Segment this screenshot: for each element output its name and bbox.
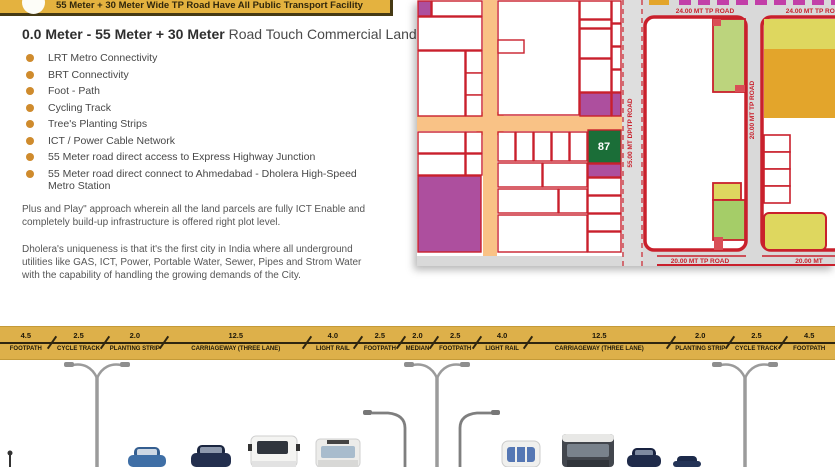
car-icon <box>627 448 661 467</box>
banner-title: 55 Meter + 30 Meter Wide TP Road Have Al… <box>56 0 363 11</box>
segment-label: LIGHT RAIL <box>316 346 350 353</box>
map-55mt-road-strip: 55.00 MT DP/TP ROAD <box>622 0 643 266</box>
list-item: 55 Meter road direct access to Express H… <box>26 151 371 164</box>
segment-width-value: 12.5 <box>592 327 607 340</box>
page-title-regular: Road Touch Commercial Land <box>225 26 417 42</box>
page-title-bold: 0.0 Meter - 55 Meter + 30 Meter <box>22 26 225 42</box>
road-dimension-bar: 4.5FOOTPATH2.5CYCLE TRACK2.0PLANTING STR… <box>0 326 835 360</box>
segment-label: MEDIAN <box>406 346 430 353</box>
segment-label: PLANTING STRIP <box>675 346 725 353</box>
road-label-24mt-left: 24.00 MT TP ROAD <box>676 8 735 15</box>
segment-width-value: 4.0 <box>328 327 338 340</box>
segment-width-value: 2.0 <box>412 327 422 340</box>
car-icon <box>673 456 701 467</box>
car-icon <box>128 447 166 467</box>
street-lamp-icon <box>64 362 130 467</box>
dimension-segment: 4.5FOOTPATH <box>783 327 835 359</box>
top-banner: 55 Meter + 30 Meter Wide TP Road Have Al… <box>0 0 393 16</box>
segment-label: PLANTING STRIP <box>110 346 160 353</box>
segment-label: CYCLE TRACK <box>57 346 100 353</box>
page-title: 0.0 Meter - 55 Meter + 30 Meter Road Tou… <box>22 26 417 42</box>
bullet-dot-icon <box>26 120 34 128</box>
list-item: Foot - Path <box>26 85 371 98</box>
road-label-20mt-vertical: 20.00 MT TP ROAD <box>749 81 756 140</box>
dimension-segment: 4.0LIGHT RAIL <box>307 327 358 359</box>
banner-circle-icon <box>22 0 45 14</box>
bus-icon <box>316 439 360 467</box>
map-left-panel <box>417 0 622 256</box>
bullet-dot-icon <box>26 71 34 79</box>
list-item: LRT Metro Connectivity <box>26 52 371 65</box>
minibus-icon <box>248 436 300 467</box>
bullet-dot-icon <box>26 54 34 62</box>
dimension-segment: 4.0LIGHT RAIL <box>477 327 528 359</box>
feature-text: LRT Metro Connectivity <box>48 52 157 64</box>
rail-pole-icon <box>460 410 500 467</box>
list-item: 55 Meter road direct connect to Ahmedaba… <box>26 168 371 193</box>
tp-scheme-map: 87 55.00 MT DP/TP ROAD 24.00 MT TP ROAD … <box>417 0 835 272</box>
dimension-segment: 12.5CARRIAGEWAY (THREE LANE) <box>528 327 671 359</box>
street-lamp-icon <box>712 362 778 467</box>
segment-label: CARRIAGEWAY (THREE LANE) <box>191 346 280 353</box>
segment-width-value: 2.5 <box>375 327 385 340</box>
segment-label: FOOTPATH <box>364 346 396 353</box>
segment-width-value: 4.5 <box>21 327 31 340</box>
parcel-purple-large <box>418 176 481 252</box>
segment-label: FOOTPATH <box>10 346 42 353</box>
dimension-segment: 2.5FOOTPATH <box>434 327 477 359</box>
parcel-purple-small <box>418 1 431 16</box>
road-label-24mt-right: 24.00 MT TP ROAD <box>786 8 835 15</box>
segment-label: CYCLE TRACK <box>735 346 778 353</box>
dimension-segment: 2.5CYCLE TRACK <box>730 327 784 359</box>
segment-width-value: 2.5 <box>450 327 460 340</box>
map-right-panel: 24.00 MT TP ROAD 24.00 MT TP ROAD 20.00 … <box>645 0 835 265</box>
dimension-segment: 2.0PLANTING STRIP <box>671 327 730 359</box>
feature-text: ICT / Power Cable Network <box>48 135 175 147</box>
road-label-55mt: 55.00 MT DP/TP ROAD <box>627 98 634 168</box>
segment-width-value: 4.5 <box>804 327 814 340</box>
parcel-purple <box>580 93 611 116</box>
car-icon <box>191 445 231 467</box>
segment-width-value: 2.5 <box>73 327 83 340</box>
feature-text: 55 Meter road direct access to Express H… <box>48 151 315 163</box>
segment-width-value: 12.5 <box>228 327 243 340</box>
segment-width-value: 4.0 <box>497 327 507 340</box>
segment-label: CARRIAGEWAY (THREE LANE) <box>555 346 644 353</box>
paragraph-dholera-uniqueness: Dholera's uniqueness is that it's the fi… <box>22 243 374 282</box>
dimension-segment: 2.5FOOTPATH <box>358 327 401 359</box>
segment-width-value: 2.0 <box>695 327 705 340</box>
street-scene <box>0 360 835 467</box>
bullet-dot-icon <box>26 153 34 161</box>
tp-scheme-map-svg: 87 55.00 MT DP/TP ROAD 24.00 MT TP ROAD … <box>417 0 835 272</box>
paragraph-plug-and-play: Plus and Play" approach wherein all the … <box>22 203 374 229</box>
road-label-20mt-bottom-right: 20.00 MT <box>795 258 822 265</box>
segment-label: FOOTPATH <box>793 346 825 353</box>
bullet-dot-icon <box>26 104 34 112</box>
feature-text: Tree's Planting Strips <box>48 118 147 130</box>
bullet-dot-icon <box>26 137 34 145</box>
list-item: Tree's Planting Strips <box>26 118 371 131</box>
list-item: Cycling Track <box>26 102 371 115</box>
bullet-dot-icon <box>26 87 34 95</box>
segment-width-value: 2.0 <box>130 327 140 340</box>
dimension-segment: 2.0PLANTING STRIP <box>105 327 164 359</box>
dimension-segment: 4.5FOOTPATH <box>0 327 52 359</box>
dimension-segment: 2.0MEDIAN <box>401 327 433 359</box>
feature-text: BRT Connectivity <box>48 69 129 81</box>
bus-icon <box>562 434 614 467</box>
list-item: BRT Connectivity <box>26 69 371 82</box>
feature-text: 55 Meter road direct connect to Ahmedaba… <box>48 168 357 193</box>
list-item: ICT / Power Cable Network <box>26 135 371 148</box>
segment-label: FOOTPATH <box>439 346 471 353</box>
dimension-segment: 12.5CARRIAGEWAY (THREE LANE) <box>164 327 307 359</box>
feature-list: LRT Metro ConnectivityBRT ConnectivityFo… <box>26 52 371 197</box>
plot-number-label: 87 <box>598 141 610 153</box>
brochure-page: 55 Meter + 30 Meter Wide TP Road Have Al… <box>0 0 835 467</box>
bullet-dot-icon <box>26 170 34 178</box>
rail-pole-icon <box>363 410 405 467</box>
tram-icon <box>502 441 540 467</box>
feature-text: Foot - Path <box>48 85 100 97</box>
feature-text: Cycling Track <box>48 102 111 114</box>
road-label-20mt-bottom: 20.00 MT TP ROAD <box>671 258 730 265</box>
segment-width-value: 2.5 <box>751 327 761 340</box>
street-scene-svg <box>0 360 835 467</box>
dimension-segment: 2.5CYCLE TRACK <box>52 327 106 359</box>
signal-pole-icon <box>8 451 13 467</box>
segment-label: LIGHT RAIL <box>485 346 519 353</box>
